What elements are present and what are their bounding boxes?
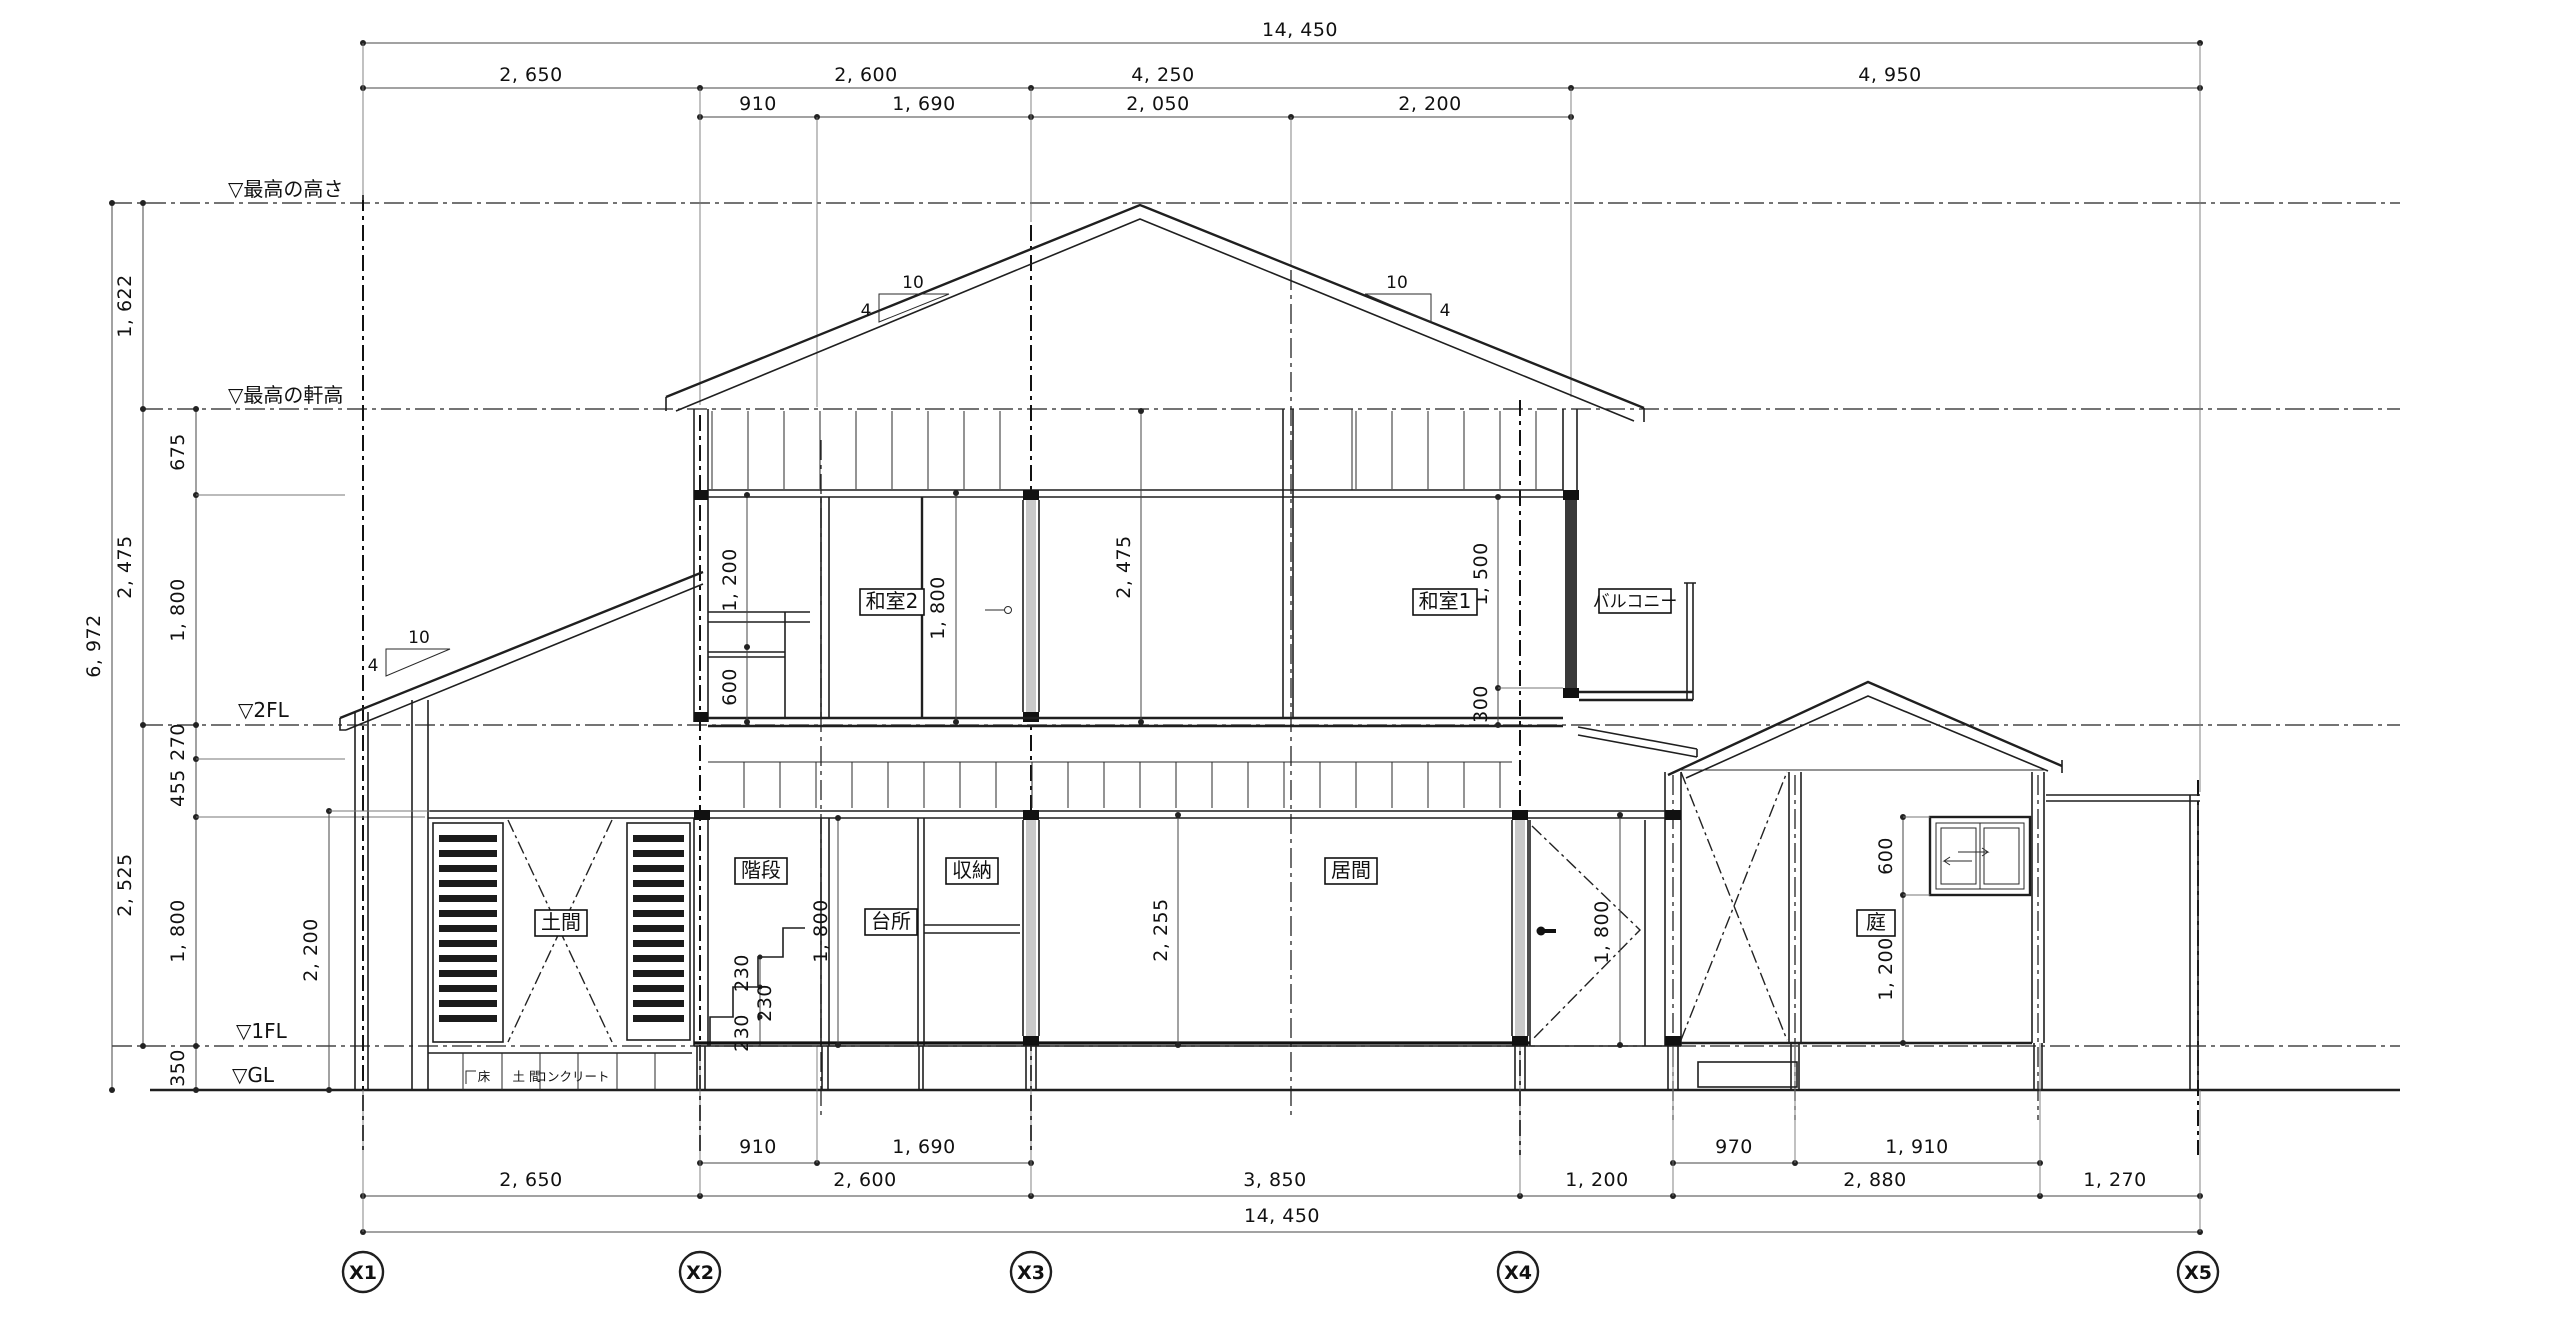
slope-run-right: 10 [1386, 273, 1408, 293]
dim-top-2200: 2, 200 [1398, 93, 1461, 115]
kitchen-partition [918, 818, 924, 1046]
label-max-eave: ▽最高の軒高 [228, 383, 343, 407]
entry-awning [1578, 727, 1697, 757]
dim-left-270: 270 [167, 723, 189, 761]
dim-top-1690: 1, 690 [892, 93, 955, 115]
dim-bot-2600: 2, 600 [833, 1169, 896, 1191]
note-concrete: コンクリート [534, 1069, 609, 1084]
dim-bot-2880: 2, 880 [1843, 1169, 1906, 1191]
grid-lines [363, 195, 2198, 1155]
grid-bubble-x3-label: X3 [1017, 1262, 1045, 1284]
room-label-washitsu2: 和室2 [866, 589, 919, 613]
storage-shelf [924, 925, 1020, 933]
washitsu2-left-wall [821, 497, 829, 718]
grid-bubble-x2-label: X2 [686, 1262, 714, 1284]
main-roof [666, 205, 1644, 422]
doma-left-wall [412, 700, 428, 1090]
dim-top-2600: 2, 600 [834, 64, 897, 86]
dim-top-4950: 4, 950 [1858, 64, 1921, 86]
foundations [697, 1043, 2042, 1090]
slope-triangle-porch [386, 649, 450, 676]
grid-bubble-x5-label: X5 [2184, 1262, 2212, 1284]
section-drawing: ▽最高の高さ ▽最高の軒高 ▽2FL ▽1FL ▽GL 14, 450 2, 6… [0, 0, 2560, 1323]
dim-living-2255: 2, 255 [1150, 898, 1172, 961]
bottom-dimensions: 910 1, 690 970 1, 910 2, 650 2, 600 3, 8… [360, 1043, 2203, 1235]
slope-rise-left: 4 [861, 301, 872, 321]
dim-bot-1200: 1, 200 [1565, 1169, 1628, 1191]
1f-ceiling [428, 811, 1681, 818]
dim-garden-600: 600 [1875, 837, 1897, 875]
porch-roof-inner [346, 584, 703, 730]
dim-top-910: 910 [739, 93, 777, 115]
slope-rise-porch: 4 [368, 656, 379, 676]
room-label-doma: 土間 [541, 910, 581, 934]
dim-left-1800-upper: 1, 800 [167, 578, 189, 641]
dim-closet-600: 600 [719, 668, 741, 706]
porch-roof [340, 572, 703, 730]
2f-siding-band [712, 409, 1536, 490]
slope-run-left: 10 [902, 273, 924, 293]
main-roof-outer [666, 205, 1644, 408]
window-slide-arrow-right [1958, 848, 1988, 856]
slope-rise-right: 4 [1440, 301, 1451, 321]
dim-left-2475: 2, 475 [114, 535, 136, 598]
dim-top-2650: 2, 650 [499, 64, 562, 86]
label-gl: ▽GL [232, 1063, 275, 1087]
dim-center-2475: 2, 475 [1113, 535, 1135, 598]
2f-right-wall [1563, 409, 1577, 490]
dim-garden-1200: 1, 200 [1875, 937, 1897, 1000]
dim-entry-1800: 1, 800 [1591, 900, 1613, 963]
room-label-balcony: バルコニー [1593, 592, 1678, 612]
1f-band [428, 762, 1681, 818]
dim-closet-1200: 1, 200 [719, 548, 741, 611]
section-drawing-canvas: ▽最高の高さ ▽最高の軒高 ▽2FL ▽1FL ▽GL 14, 450 2, 6… [0, 0, 2560, 1323]
dim-bot-2650: 2, 650 [499, 1169, 562, 1191]
dim-bot-1270: 1, 270 [2083, 1169, 2146, 1191]
garden-window [1930, 817, 2030, 895]
porch-roof-outer [340, 572, 703, 718]
grid-bubble-x1-label: X1 [349, 1262, 377, 1284]
dim-bot-1910: 1, 910 [1885, 1136, 1948, 1158]
dim-washitsu2-1800: 1, 800 [927, 576, 949, 639]
room-label-garden: 庭 [1866, 910, 1886, 934]
main-roof-inner [676, 219, 1634, 421]
interior-dimensions: 1, 200 600 1, 800 2, 475 1, 500 300 1, 8… [300, 408, 1930, 1093]
dim-top-4250: 4, 250 [1131, 64, 1194, 86]
note-floor: 床 [478, 1069, 491, 1084]
2f-ceiling [708, 490, 1563, 497]
dim-riser-230-2: 230 [754, 984, 776, 1022]
washitsu2-door-handle [1005, 607, 1012, 614]
top-dimensions: 14, 450 2, 650 2, 600 4, 250 4, 950 910 … [360, 19, 2203, 792]
garden-roof-outer [1668, 682, 2062, 775]
grid-bubbles: X1 X2 X3 X4 X5 [343, 1252, 2218, 1292]
2f-structure [694, 409, 1697, 757]
room-label-living: 居間 [1331, 858, 1371, 882]
dim-left-6972: 6, 972 [83, 614, 105, 677]
doma-louver-door-right [627, 823, 690, 1040]
dim-top-2050: 2, 050 [1126, 93, 1189, 115]
window-slide-arrow-left [1944, 857, 1972, 865]
dim-left-1800-lower: 1, 800 [167, 899, 189, 962]
doma-louver-door-left [433, 823, 503, 1042]
room-label-stairs: 階段 [741, 858, 781, 882]
slope-run-porch: 10 [408, 628, 430, 648]
left-dimensions: 6, 972 1, 622 2, 475 2, 525 675 1, 800 2… [83, 200, 425, 1093]
doma-ground-section: 床 土 間 コンクリート [428, 1053, 692, 1090]
dim-left-1622: 1, 622 [114, 274, 136, 337]
dim-top-total: 14, 450 [1262, 19, 1338, 41]
dim-left-2525: 2, 525 [114, 853, 136, 916]
room-label-kitchen: 台所 [871, 909, 911, 933]
room-label-washitsu1: 和室1 [1419, 589, 1472, 613]
dim-bot-970: 970 [1715, 1136, 1753, 1158]
balcony-floor [1579, 692, 1693, 700]
dim-bot-1690: 1, 690 [892, 1136, 955, 1158]
porch-wall [355, 712, 368, 1090]
slope-triangle-right [1365, 294, 1431, 322]
dim-doma-2200: 2, 200 [300, 918, 322, 981]
label-2fl: ▽2FL [238, 698, 290, 722]
dim-balcony-300: 300 [1470, 685, 1492, 723]
garden-cross-brace [1681, 772, 1787, 1040]
2f-floor [708, 718, 1563, 726]
label-1fl: ▽1FL [236, 1019, 288, 1043]
garden-roof [1668, 682, 2062, 778]
dim-bot-total: 14, 450 [1244, 1205, 1320, 1227]
dim-left-675: 675 [167, 433, 189, 471]
dim-left-455: 455 [167, 769, 189, 807]
garden-step [1698, 1062, 1797, 1087]
label-max-height: ▽最高の高さ [228, 177, 343, 201]
slope-triangle-left [879, 294, 949, 322]
dim-bot-3850: 3, 850 [1243, 1169, 1306, 1191]
grid-bubble-x4-label: X4 [1504, 1262, 1532, 1284]
dim-left-350: 350 [167, 1049, 189, 1087]
dim-kitchen-1800: 1, 800 [810, 899, 832, 962]
balcony-glazed-door [1565, 500, 1577, 688]
room-label-storage: 収納 [952, 858, 992, 882]
dim-riser-230-3: 230 [731, 1014, 753, 1052]
dim-riser-230-1: 230 [731, 954, 753, 992]
dim-bot-910: 910 [739, 1136, 777, 1158]
level-lines: ▽最高の高さ ▽最高の軒高 ▽2FL ▽1FL ▽GL [112, 177, 2400, 1090]
balcony-railing [1684, 583, 1696, 700]
